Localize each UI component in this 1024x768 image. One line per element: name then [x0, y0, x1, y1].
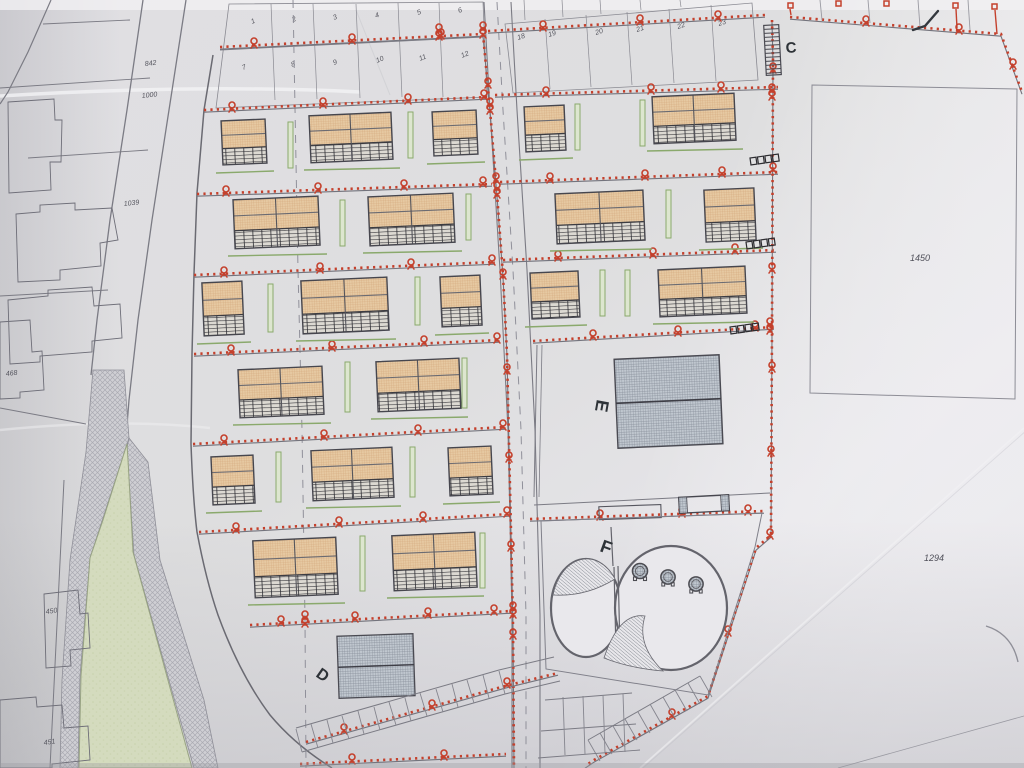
svg-text:1450: 1450: [910, 253, 930, 263]
svg-text:842: 842: [144, 60, 156, 68]
svg-text:468: 468: [5, 370, 17, 378]
svg-text:1294: 1294: [924, 553, 944, 563]
svg-text:C: C: [785, 39, 797, 57]
